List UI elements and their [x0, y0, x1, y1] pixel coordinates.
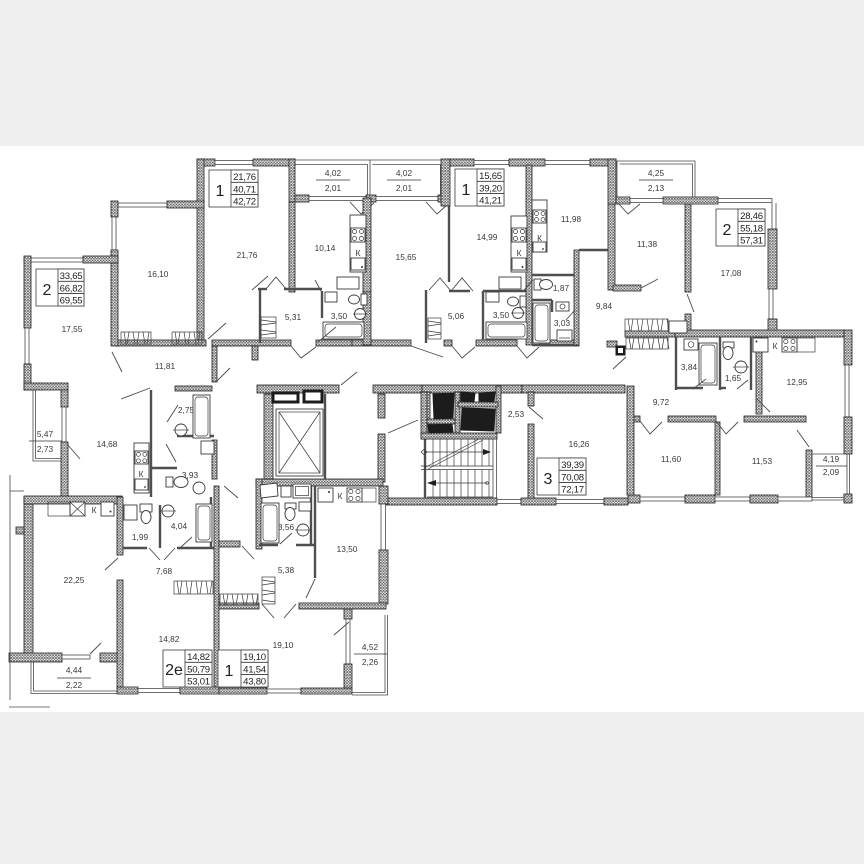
svg-text:33,65: 33,65 [60, 271, 83, 282]
svg-text:2: 2 [43, 282, 52, 299]
svg-text:19,10: 19,10 [243, 652, 266, 663]
svg-text:2,53: 2,53 [508, 409, 525, 419]
svg-text:57,31: 57,31 [740, 236, 763, 247]
svg-text:69,55: 69,55 [60, 296, 83, 307]
svg-text:К: К [773, 341, 778, 351]
svg-text:41,54: 41,54 [243, 664, 267, 675]
svg-text:2,75: 2,75 [178, 405, 195, 415]
svg-text:К: К [537, 233, 542, 243]
svg-text:К: К [356, 248, 361, 258]
svg-text:4,25: 4,25 [648, 168, 665, 178]
svg-text:43,80: 43,80 [243, 677, 266, 688]
svg-text:2,01: 2,01 [325, 183, 342, 193]
svg-text:70,08: 70,08 [561, 472, 584, 483]
svg-text:9,84: 9,84 [596, 301, 613, 311]
svg-text:1,99: 1,99 [132, 532, 149, 542]
svg-text:21,76: 21,76 [237, 250, 258, 260]
svg-text:42,72: 42,72 [233, 197, 256, 208]
svg-text:2,26: 2,26 [362, 657, 379, 667]
svg-text:17,08: 17,08 [721, 268, 742, 278]
svg-text:2,01: 2,01 [396, 183, 413, 193]
svg-text:3,50: 3,50 [331, 311, 348, 321]
svg-text:11,60: 11,60 [661, 454, 682, 464]
svg-text:4,44: 4,44 [66, 665, 83, 675]
svg-text:11,81: 11,81 [155, 361, 176, 371]
svg-text:2,13: 2,13 [648, 183, 665, 193]
svg-text:3,84: 3,84 [681, 362, 698, 372]
svg-text:16,10: 16,10 [148, 269, 169, 279]
svg-text:13,50: 13,50 [337, 544, 358, 554]
svg-text:4,02: 4,02 [396, 168, 413, 178]
svg-text:К: К [338, 491, 343, 501]
svg-text:41,21: 41,21 [479, 196, 502, 207]
svg-text:14,82: 14,82 [159, 634, 180, 644]
svg-text:5,38: 5,38 [278, 565, 295, 575]
svg-text:5,06: 5,06 [448, 311, 465, 321]
svg-text:55,18: 55,18 [740, 223, 763, 234]
svg-text:22,25: 22,25 [64, 575, 85, 585]
svg-text:1: 1 [462, 182, 471, 199]
svg-text:16,26: 16,26 [569, 439, 590, 449]
svg-text:2,73: 2,73 [37, 444, 54, 454]
svg-text:11,98: 11,98 [561, 214, 582, 224]
svg-text:19,10: 19,10 [273, 640, 294, 650]
svg-text:53,01: 53,01 [187, 677, 210, 688]
svg-text:4,52: 4,52 [362, 642, 379, 652]
svg-text:11,53: 11,53 [752, 456, 773, 466]
svg-text:2,22: 2,22 [66, 680, 83, 690]
svg-text:2е: 2е [165, 662, 183, 679]
svg-text:66,82: 66,82 [60, 283, 83, 294]
svg-text:5,47: 5,47 [37, 429, 54, 439]
svg-text:3,50: 3,50 [493, 310, 510, 320]
svg-text:1,65: 1,65 [725, 373, 742, 383]
svg-text:4,02: 4,02 [325, 168, 342, 178]
svg-text:11,38: 11,38 [637, 239, 658, 249]
svg-text:14,68: 14,68 [97, 439, 118, 449]
svg-text:72,17: 72,17 [561, 485, 584, 496]
svg-text:2: 2 [723, 222, 732, 239]
svg-text:14,99: 14,99 [477, 232, 498, 242]
svg-text:1: 1 [225, 663, 234, 680]
svg-text:17,55: 17,55 [62, 324, 83, 334]
svg-text:14,82: 14,82 [187, 652, 210, 663]
svg-text:3: 3 [544, 471, 553, 488]
svg-text:21,76: 21,76 [233, 172, 256, 183]
svg-text:5,31: 5,31 [285, 312, 302, 322]
svg-text:3,56: 3,56 [278, 522, 295, 532]
svg-text:К: К [517, 248, 522, 258]
svg-text:7,68: 7,68 [156, 566, 173, 576]
svg-text:28,46: 28,46 [740, 211, 763, 222]
svg-text:15,65: 15,65 [479, 171, 502, 182]
svg-text:2,09: 2,09 [823, 467, 840, 477]
svg-text:4,04: 4,04 [171, 521, 188, 531]
svg-text:9,72: 9,72 [653, 397, 670, 407]
svg-text:4,19: 4,19 [823, 454, 840, 464]
svg-text:К: К [139, 469, 144, 479]
svg-text:10,14: 10,14 [315, 243, 336, 253]
svg-text:12,95: 12,95 [787, 377, 808, 387]
svg-text:39,20: 39,20 [479, 183, 502, 194]
svg-text:40,71: 40,71 [233, 184, 256, 195]
svg-text:50,79: 50,79 [187, 664, 210, 675]
svg-text:1,87: 1,87 [553, 283, 570, 293]
svg-text:39,39: 39,39 [561, 460, 584, 471]
svg-text:К: К [92, 505, 97, 515]
svg-text:1: 1 [216, 183, 225, 200]
svg-text:15,65: 15,65 [396, 252, 417, 262]
svg-text:3,03: 3,03 [554, 318, 571, 328]
